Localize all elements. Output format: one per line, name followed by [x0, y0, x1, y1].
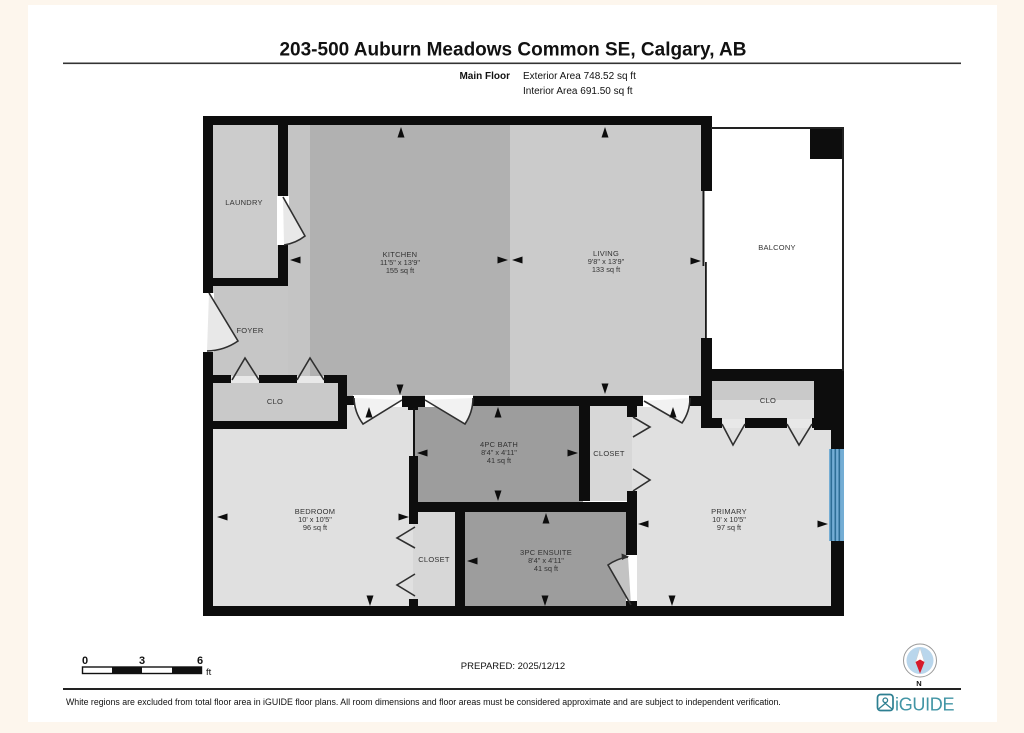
svg-text:BALCONY: BALCONY: [758, 243, 796, 252]
svg-text:LAUNDRY: LAUNDRY: [225, 198, 262, 207]
svg-text:Interior Area 691.50 sq ft: Interior Area 691.50 sq ft: [523, 86, 633, 97]
svg-text:41 sq ft: 41 sq ft: [534, 564, 558, 573]
svg-text:CLOSET: CLOSET: [593, 449, 625, 458]
svg-text:Exterior Area 748.52 sq ft: Exterior Area 748.52 sq ft: [523, 71, 636, 82]
svg-text:133 sq ft: 133 sq ft: [592, 265, 620, 274]
svg-text:0: 0: [82, 655, 88, 667]
svg-text:CLOSET: CLOSET: [418, 555, 450, 564]
svg-text:iGUIDE: iGUIDE: [895, 695, 954, 715]
svg-text:41 sq ft: 41 sq ft: [487, 456, 511, 465]
svg-text:N: N: [916, 679, 921, 688]
svg-text:White regions are excluded fro: White regions are excluded from total fl…: [66, 697, 781, 707]
svg-text:97 sq ft: 97 sq ft: [717, 523, 741, 532]
svg-text:FOYER: FOYER: [236, 326, 263, 335]
svg-text:203-500 Auburn Meadows Common: 203-500 Auburn Meadows Common SE, Calgar…: [279, 40, 746, 61]
svg-text:96 sq ft: 96 sq ft: [303, 523, 327, 532]
svg-text:Main Floor: Main Floor: [459, 71, 510, 82]
svg-text:155 sq ft: 155 sq ft: [386, 266, 414, 275]
svg-text:PREPARED: 2025/12/12: PREPARED: 2025/12/12: [461, 661, 565, 672]
svg-text:3: 3: [139, 655, 145, 667]
svg-text:6: 6: [197, 655, 203, 667]
svg-text:ft: ft: [206, 667, 212, 678]
svg-text:CLO: CLO: [267, 397, 283, 406]
svg-text:CLO: CLO: [760, 396, 776, 405]
